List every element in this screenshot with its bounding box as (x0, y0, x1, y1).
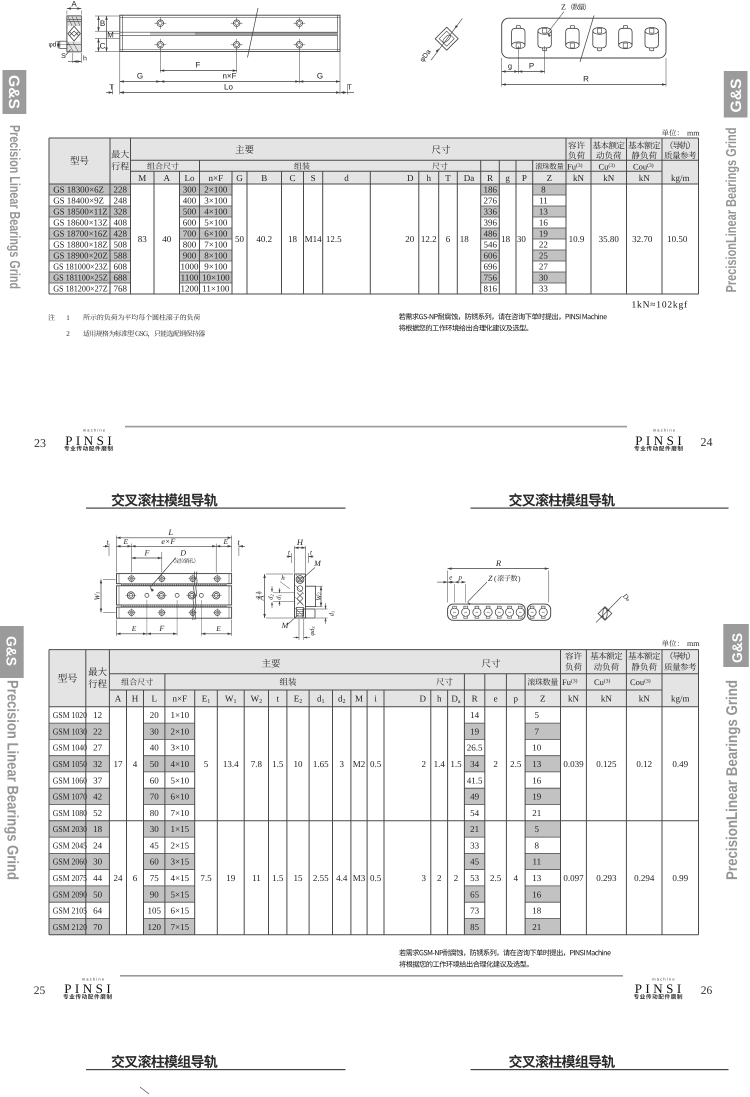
svg-text:408: 408 (113, 217, 127, 227)
svg-text:0.5: 0.5 (370, 759, 382, 769)
svg-text:1.5: 1.5 (272, 759, 284, 769)
svg-text:336: 336 (483, 206, 497, 216)
svg-text:588: 588 (113, 250, 127, 260)
svg-text:14: 14 (470, 710, 480, 720)
svg-text:21: 21 (470, 824, 479, 834)
svg-text:4: 4 (514, 873, 519, 883)
svg-text:R: R (583, 75, 589, 84)
svg-text:70: 70 (93, 922, 103, 932)
svg-text:13: 13 (532, 759, 542, 769)
svg-text:4: 4 (133, 759, 138, 769)
svg-text:Z: Z (540, 694, 546, 704)
svg-text:p: p (458, 574, 463, 582)
svg-text:Z: Z (547, 173, 553, 183)
svg-text:24: 24 (93, 840, 103, 850)
svg-text:2: 2 (66, 330, 70, 338)
svg-text:0.039: 0.039 (563, 759, 584, 769)
svg-text:13: 13 (532, 873, 542, 883)
svg-text:GSM 1080: GSM 1080 (53, 808, 88, 818)
svg-text:12.5: 12.5 (326, 234, 342, 244)
svg-text:h: h (83, 55, 87, 63)
svg-text:11×100: 11×100 (202, 283, 230, 293)
svg-text:-0.3: -0.3 (256, 591, 262, 600)
svg-text:S: S (61, 53, 66, 60)
svg-text:Precision Linear Bearings Grin: Precision Linear Bearings Grind (6, 125, 22, 289)
svg-text:816: 816 (483, 283, 497, 293)
svg-text:10×100: 10×100 (202, 272, 230, 282)
svg-text:φd: φd (49, 42, 57, 49)
svg-text:228: 228 (113, 184, 127, 194)
svg-text:186: 186 (483, 184, 497, 194)
svg-text:7: 7 (535, 726, 540, 736)
svg-text:3: 3 (422, 873, 427, 883)
svg-text:kg/m: kg/m (671, 173, 690, 183)
svg-text:12.2: 12.2 (421, 234, 437, 244)
svg-text:11: 11 (252, 873, 261, 883)
svg-text:E: E (123, 537, 129, 546)
svg-text:1.5: 1.5 (450, 759, 462, 769)
svg-text:60: 60 (150, 857, 160, 867)
svg-text:0.125: 0.125 (596, 759, 617, 769)
svg-text:45: 45 (150, 840, 160, 850)
svg-text:3×10: 3×10 (171, 743, 190, 753)
svg-text:1200: 1200 (181, 283, 200, 293)
svg-text:8×100: 8×100 (204, 250, 228, 260)
svg-text:2: 2 (422, 759, 427, 769)
svg-text:kN: kN (601, 694, 613, 704)
svg-text:32: 32 (93, 759, 102, 769)
svg-text:900: 900 (183, 250, 197, 260)
svg-text:600: 600 (183, 217, 197, 227)
svg-text:50: 50 (150, 759, 160, 769)
svg-text:41.5: 41.5 (467, 775, 483, 785)
svg-text:768: 768 (113, 283, 127, 293)
svg-text:83: 83 (138, 234, 148, 244)
svg-text:19: 19 (532, 792, 542, 802)
svg-text:800: 800 (183, 239, 197, 249)
svg-text:42: 42 (93, 792, 102, 802)
svg-text:M14: M14 (305, 234, 323, 244)
svg-text:1.5: 1.5 (272, 873, 284, 883)
svg-text:5×15: 5×15 (171, 889, 190, 899)
svg-text:kN: kN (568, 694, 580, 704)
svg-text:27: 27 (93, 743, 103, 753)
svg-text:R: R (472, 694, 478, 704)
svg-text:7.8: 7.8 (251, 759, 263, 769)
svg-text:Precision Linear Bearings Grin: Precision Linear Bearings Grind (4, 680, 21, 880)
svg-text:105: 105 (147, 906, 161, 916)
svg-text:5×100: 5×100 (204, 217, 228, 227)
svg-text:e: e (494, 694, 498, 704)
svg-text:50: 50 (235, 234, 245, 244)
svg-text:GS 181200×27Z: GS 181200×27Z (53, 283, 107, 293)
svg-text:40.2: 40.2 (256, 234, 272, 244)
svg-text:6: 6 (446, 234, 451, 244)
svg-text:0.097: 0.097 (563, 873, 584, 883)
svg-text:GSM 2060: GSM 2060 (53, 857, 88, 867)
svg-text:R: R (495, 558, 502, 568)
svg-text:d2: d2 (268, 594, 275, 600)
svg-text:1000: 1000 (181, 261, 200, 271)
svg-text:23: 23 (34, 436, 46, 450)
svg-text:GS 18500×11Z: GS 18500×11Z (53, 206, 107, 216)
svg-text:Lo: Lo (185, 173, 195, 183)
svg-text:25: 25 (539, 250, 549, 260)
svg-text:g: g (508, 62, 512, 71)
svg-text:85: 85 (470, 922, 480, 932)
svg-text:16: 16 (539, 217, 549, 227)
svg-text:2×100: 2×100 (204, 184, 228, 194)
svg-text:19: 19 (539, 228, 549, 238)
svg-text:756: 756 (483, 272, 497, 282)
svg-text:26.5: 26.5 (467, 743, 483, 753)
svg-text:19: 19 (226, 873, 236, 883)
svg-text:13: 13 (539, 206, 549, 216)
svg-text:4×15: 4×15 (171, 873, 190, 883)
svg-text:GS 181000×23Z: GS 181000×23Z (53, 261, 107, 271)
svg-text:0.12: 0.12 (636, 759, 652, 769)
svg-text:30: 30 (539, 272, 549, 282)
svg-text:0.49: 0.49 (672, 759, 688, 769)
svg-text:1: 1 (66, 314, 70, 322)
svg-text:396: 396 (483, 217, 497, 227)
svg-text:35.80: 35.80 (599, 234, 620, 244)
svg-text:400: 400 (183, 195, 197, 205)
svg-text:30: 30 (517, 234, 527, 244)
svg-text:18: 18 (501, 234, 511, 244)
svg-text:2: 2 (493, 759, 498, 769)
svg-text:73: 73 (470, 906, 480, 916)
svg-text:4.4: 4.4 (336, 873, 348, 883)
svg-text:40: 40 (162, 234, 172, 244)
svg-text:PrecisionLinear Bearings Grind: PrecisionLinear Bearings Grind (724, 128, 740, 293)
svg-text:F: F (158, 624, 164, 633)
svg-text:GSM 1060: GSM 1060 (53, 775, 88, 785)
svg-text:3×15: 3×15 (171, 857, 190, 867)
svg-text:24: 24 (701, 435, 713, 449)
svg-text:h: h (281, 574, 285, 582)
svg-text:n×F: n×F (222, 72, 236, 81)
svg-text:PINSI: PINSI (64, 981, 114, 996)
svg-text:11: 11 (539, 195, 548, 205)
svg-text:25: 25 (34, 985, 46, 997)
svg-text:M: M (138, 173, 146, 183)
svg-text:GSM 1070: GSM 1070 (53, 792, 88, 802)
svg-text:GSM 1030: GSM 1030 (53, 726, 88, 736)
svg-text:GS 18400×9Z: GS 18400×9Z (53, 195, 104, 205)
svg-text:kN: kN (603, 173, 615, 183)
svg-text:30: 30 (150, 824, 160, 834)
svg-text:PINSI: PINSI (635, 981, 685, 996)
svg-text:65: 65 (470, 889, 480, 899)
svg-text:5: 5 (535, 824, 540, 834)
svg-text:33: 33 (539, 283, 549, 293)
svg-text:1.65: 1.65 (313, 759, 329, 769)
svg-text:d: d (344, 173, 349, 183)
svg-text:G: G (137, 72, 143, 81)
svg-text:M3: M3 (353, 873, 366, 883)
svg-text:A: A (115, 694, 122, 704)
svg-text:Z: Z (561, 3, 566, 12)
svg-text:C: C (289, 173, 295, 183)
svg-text:300: 300 (183, 184, 197, 194)
svg-text:70: 70 (150, 792, 160, 802)
svg-text:GSM 2030: GSM 2030 (53, 824, 88, 834)
svg-text:688: 688 (113, 272, 127, 282)
svg-text:kN: kN (639, 173, 651, 183)
svg-text:33: 33 (470, 840, 480, 850)
svg-text:machine: machine (653, 428, 677, 433)
svg-text:27: 27 (539, 261, 549, 271)
svg-text:26: 26 (701, 985, 713, 997)
svg-text:Da: Da (464, 173, 475, 183)
svg-text:kN: kN (573, 173, 585, 183)
svg-text:E: E (215, 624, 221, 633)
svg-text:64: 64 (93, 906, 103, 916)
svg-text:2.55: 2.55 (313, 873, 329, 883)
svg-text:20: 20 (150, 710, 160, 720)
svg-text:606: 606 (483, 250, 497, 260)
svg-text:60: 60 (150, 775, 160, 785)
svg-text:6×100: 6×100 (204, 228, 228, 238)
svg-text:11: 11 (532, 857, 541, 867)
svg-text:E: E (131, 624, 137, 633)
svg-text:3: 3 (339, 759, 344, 769)
svg-text:H: H (132, 694, 139, 704)
svg-text:10: 10 (532, 743, 542, 753)
svg-text:p: p (514, 694, 519, 704)
svg-text:1100: 1100 (181, 272, 199, 282)
svg-text:17: 17 (114, 759, 124, 769)
svg-text:n×F: n×F (209, 173, 224, 183)
svg-text:T: T (445, 173, 451, 183)
svg-text:15: 15 (294, 873, 304, 883)
svg-text:GSM 1050: GSM 1050 (53, 759, 88, 769)
svg-text:GSM 1020: GSM 1020 (53, 710, 88, 720)
svg-text:9×100: 9×100 (204, 261, 228, 271)
svg-text:276: 276 (483, 195, 497, 205)
svg-text:B: B (100, 19, 105, 28)
svg-text:18: 18 (532, 906, 542, 916)
svg-text:M2: M2 (353, 759, 366, 769)
svg-text:3×100: 3×100 (204, 195, 228, 205)
svg-text:44: 44 (93, 873, 103, 883)
svg-text:G&S: G&S (5, 75, 22, 109)
svg-text:21: 21 (532, 922, 541, 932)
svg-text:508: 508 (113, 239, 127, 249)
svg-text:16: 16 (532, 775, 542, 785)
svg-text:F: F (143, 548, 149, 557)
svg-text:52: 52 (93, 808, 102, 818)
svg-text:0.99: 0.99 (672, 873, 688, 883)
svg-text:32.70: 32.70 (632, 234, 653, 244)
svg-text:Z: Z (488, 574, 493, 583)
svg-text:0.5: 0.5 (370, 873, 382, 883)
svg-text:1kN≈102kgf: 1kN≈102kgf (632, 301, 689, 311)
svg-text:M: M (107, 31, 114, 40)
svg-text:4×10: 4×10 (171, 759, 190, 769)
svg-text:mm: mm (687, 129, 700, 138)
svg-text:12: 12 (93, 710, 102, 720)
svg-text:D: D (179, 548, 186, 557)
svg-text:18: 18 (460, 234, 470, 244)
svg-text:1×15: 1×15 (171, 824, 190, 834)
svg-text:2: 2 (454, 873, 459, 883)
svg-text:kg/m: kg/m (671, 694, 690, 704)
svg-text:6×15: 6×15 (171, 906, 190, 916)
svg-text:30: 30 (150, 726, 160, 736)
svg-text:n×F: n×F (173, 694, 188, 704)
svg-text:A: A (71, 0, 77, 9)
svg-text:G&S: G&S (4, 636, 20, 666)
svg-text:G: G (236, 173, 243, 183)
svg-text:18: 18 (288, 234, 298, 244)
svg-text:d1: d1 (329, 611, 336, 617)
svg-text:GSM 2075: GSM 2075 (53, 873, 88, 883)
svg-text:696: 696 (483, 261, 497, 271)
svg-text:8: 8 (541, 184, 546, 194)
svg-text:53: 53 (470, 873, 480, 883)
svg-text:e×F: e×F (161, 537, 175, 546)
svg-text:45: 45 (470, 857, 480, 867)
svg-text:22: 22 (539, 239, 548, 249)
svg-text:10.9: 10.9 (569, 234, 585, 244)
svg-text:G&S: G&S (729, 633, 745, 663)
svg-text:5: 5 (535, 710, 540, 720)
svg-text:90: 90 (150, 889, 160, 899)
svg-text:G: G (317, 72, 323, 81)
svg-text:GS 18900×20Z: GS 18900×20Z (53, 250, 107, 260)
svg-text:50: 50 (93, 889, 103, 899)
svg-text:54: 54 (470, 808, 480, 818)
svg-text:P: P (529, 62, 534, 71)
svg-text:16: 16 (532, 889, 542, 899)
svg-text:GS 18600×13Z: GS 18600×13Z (53, 217, 107, 227)
svg-text:0.293: 0.293 (596, 873, 617, 883)
svg-text:T: T (109, 83, 114, 92)
svg-text:φd3: φd3 (309, 626, 316, 636)
svg-text:Lo: Lo (224, 83, 233, 92)
svg-text:428: 428 (113, 228, 127, 238)
svg-text:F: F (196, 61, 201, 70)
svg-text:GSM 2045: GSM 2045 (53, 840, 88, 850)
svg-text:22: 22 (93, 726, 102, 736)
svg-text:D: D (420, 694, 427, 704)
svg-text:37: 37 (93, 775, 103, 785)
svg-text:GS 18700×16Z: GS 18700×16Z (53, 228, 107, 238)
svg-text:120: 120 (147, 922, 161, 932)
svg-text:486: 486 (483, 228, 497, 238)
svg-text:49: 49 (470, 792, 480, 802)
svg-text:h: h (427, 173, 432, 183)
svg-text:E: E (223, 537, 229, 546)
svg-text:34: 34 (470, 759, 480, 769)
svg-text:546: 546 (483, 239, 497, 249)
svg-text:6×10: 6×10 (171, 792, 190, 802)
svg-text:GS 18300×6Z: GS 18300×6Z (53, 184, 104, 194)
svg-text:GSM 2120: GSM 2120 (53, 922, 88, 932)
svg-text:2: 2 (437, 873, 442, 883)
svg-text:M: M (281, 621, 290, 630)
svg-text:C: C (100, 42, 106, 51)
svg-text:7.5: 7.5 (200, 873, 212, 883)
svg-text:A: A (164, 173, 171, 183)
svg-text:G&S: G&S (728, 79, 745, 113)
svg-text:500: 500 (183, 206, 197, 216)
svg-text:M: M (313, 559, 322, 568)
svg-text:P: P (522, 173, 527, 183)
svg-text:5: 5 (204, 759, 209, 769)
svg-text:20: 20 (405, 234, 415, 244)
svg-text:700: 700 (183, 228, 197, 238)
svg-text:T: T (347, 83, 352, 92)
svg-text:21: 21 (532, 808, 541, 818)
svg-text:80: 80 (150, 808, 160, 818)
svg-text:GSM 2105: GSM 2105 (53, 906, 88, 916)
svg-text:machine: machine (83, 428, 107, 433)
svg-text:7×100: 7×100 (204, 239, 228, 249)
svg-text:75: 75 (150, 873, 160, 883)
svg-text:B: B (261, 173, 267, 183)
svg-text:g: g (505, 173, 510, 183)
svg-text:GS 181100×25Z: GS 181100×25Z (53, 272, 107, 282)
svg-text:2×10: 2×10 (171, 726, 190, 736)
svg-text:0.294: 0.294 (634, 873, 655, 883)
svg-text:mm: mm (687, 639, 700, 648)
svg-text:S: S (311, 173, 316, 183)
svg-text:2.5: 2.5 (490, 873, 502, 883)
svg-text:R: R (487, 173, 493, 183)
svg-text:18: 18 (93, 824, 103, 834)
svg-text:kN: kN (639, 694, 651, 704)
svg-text:GS 18800×18Z: GS 18800×18Z (53, 239, 107, 249)
svg-text:4×100: 4×100 (204, 206, 228, 216)
svg-text:5×10: 5×10 (171, 775, 190, 785)
svg-text:1×10: 1×10 (171, 710, 190, 720)
svg-text:608: 608 (113, 261, 127, 271)
svg-text:GSM 2090: GSM 2090 (53, 889, 88, 899)
svg-text:248: 248 (113, 195, 127, 205)
svg-text:24: 24 (114, 873, 124, 883)
svg-text:L: L (151, 694, 157, 704)
svg-text:d1: d1 (276, 594, 283, 600)
svg-text:13.4: 13.4 (223, 759, 239, 769)
svg-text:6: 6 (133, 873, 138, 883)
svg-text:1.4: 1.4 (434, 759, 446, 769)
svg-text:10.50: 10.50 (667, 234, 688, 244)
svg-text:328: 328 (113, 206, 127, 216)
svg-text:19: 19 (470, 726, 480, 736)
svg-text:7×10: 7×10 (171, 808, 190, 818)
svg-text:e: e (449, 574, 452, 582)
svg-text:PrecisionLinear Bearings Grind: PrecisionLinear Bearings Grind (724, 680, 741, 880)
svg-text:h: h (437, 694, 442, 704)
svg-text:H: H (296, 537, 304, 547)
svg-text:2×15: 2×15 (171, 840, 190, 850)
svg-text:10: 10 (294, 759, 304, 769)
svg-text:30: 30 (93, 857, 103, 867)
svg-text:7×15: 7×15 (171, 922, 190, 932)
svg-text:L: L (167, 527, 173, 537)
svg-text:40: 40 (150, 743, 160, 753)
svg-text:2.5: 2.5 (510, 759, 522, 769)
svg-text:D: D (407, 173, 414, 183)
svg-text:M: M (355, 694, 363, 704)
svg-text:8: 8 (535, 840, 540, 850)
svg-text:GSM 1040: GSM 1040 (53, 743, 88, 753)
